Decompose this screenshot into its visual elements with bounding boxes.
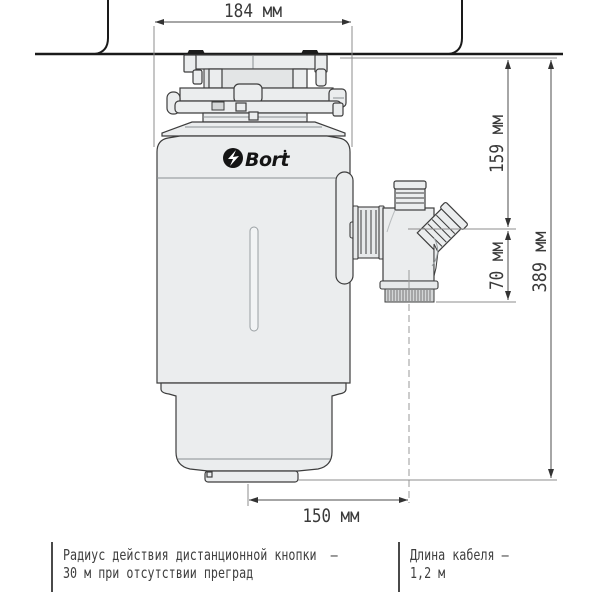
footnote-divider-right — [398, 542, 400, 592]
footnote-remote-line1: Радиус действия дистанционной кнопки – — [63, 546, 338, 564]
hose-barb-top — [394, 181, 426, 210]
lower-housing — [161, 383, 346, 471]
sink-wall-left — [95, 0, 108, 54]
sink-wall-right — [449, 0, 462, 54]
mounting-assembly — [162, 50, 346, 136]
dimension-drawing: Bort — [0, 0, 600, 600]
footnote-remote-line2: 30 м при отсутствии преград — [63, 564, 338, 582]
dimension-label-outlet-offset: 70 мм — [486, 242, 508, 290]
body-highlight-slot — [250, 227, 258, 331]
footnote-cable-line2: 1,2 м — [410, 564, 509, 582]
footnote-cable-line1: Длина кабеля – — [410, 546, 509, 564]
brand-name: Bort — [245, 149, 290, 171]
outlet-threads — [385, 289, 434, 302]
disposer-body: Bort — [157, 136, 353, 482]
bort-logo: Bort — [223, 148, 290, 171]
dimension-base-width: 150 мм — [248, 484, 408, 527]
dimension-label-top-width: 184 мм — [224, 0, 282, 22]
dimension-label-total-height: 389 мм — [529, 232, 551, 293]
disposer-dimension-diagram: Bort — [0, 0, 600, 600]
dimension-label-upper-height: 159 мм — [486, 115, 508, 173]
dimension-label-base-width: 150 мм — [303, 505, 360, 527]
sink-counter-section — [35, 0, 563, 58]
footnote-divider-left — [51, 542, 53, 592]
base-plate — [205, 471, 298, 482]
